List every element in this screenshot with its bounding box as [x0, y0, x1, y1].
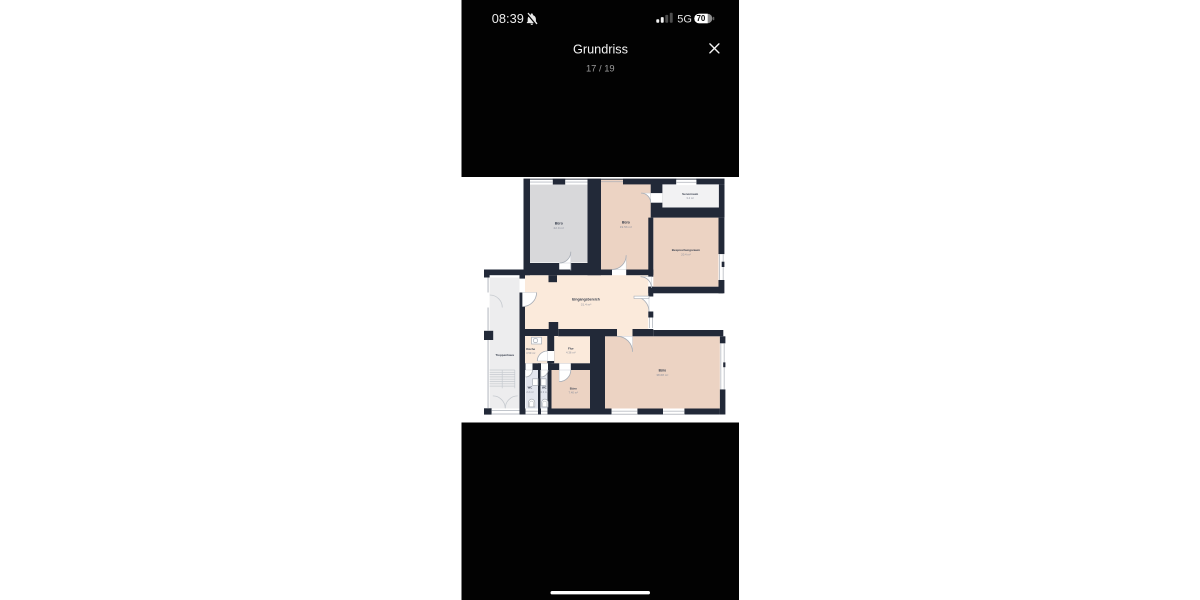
- svg-text:38.68 m²: 38.68 m²: [656, 373, 668, 377]
- svg-text:20.4 m²: 20.4 m²: [681, 252, 691, 256]
- svg-text:17 / 19: 17 / 19: [586, 62, 615, 73]
- svg-text:WC: WC: [542, 386, 547, 390]
- svg-text:3.4 m²: 3.4 m²: [686, 196, 694, 200]
- svg-text:Treppenhaus: Treppenhaus: [495, 353, 514, 357]
- svg-text:WC: WC: [528, 386, 533, 390]
- svg-text:Küche: Küche: [526, 347, 535, 351]
- svg-text:70: 70: [696, 14, 705, 23]
- svg-text:Eingangsbereich: Eingangsbereich: [572, 298, 600, 302]
- svg-text:31.4 m²: 31.4 m²: [581, 303, 592, 307]
- svg-text:19.53 m²: 19.53 m²: [620, 225, 632, 229]
- svg-text:7.40 m²: 7.40 m²: [569, 391, 579, 395]
- svg-text:22.9 m²: 22.9 m²: [554, 226, 565, 230]
- svg-text:Büro: Büro: [659, 369, 666, 373]
- svg-text:4.36 m²: 4.36 m²: [566, 351, 576, 355]
- svg-text:Grundriss: Grundriss: [573, 42, 628, 56]
- svg-text:2.3 m²: 2.3 m²: [541, 390, 548, 394]
- svg-text:08:39: 08:39: [492, 11, 524, 26]
- svg-text:Serverraum: Serverraum: [682, 192, 698, 196]
- svg-text:5G: 5G: [677, 13, 692, 25]
- svg-text:3.59 m²: 3.59 m²: [526, 351, 535, 355]
- svg-text:2.2 m²: 2.2 m²: [526, 390, 533, 394]
